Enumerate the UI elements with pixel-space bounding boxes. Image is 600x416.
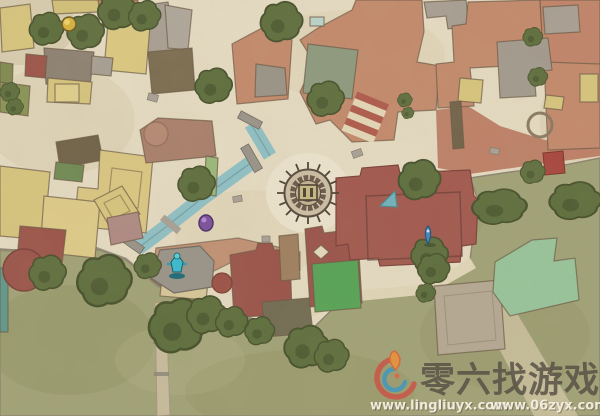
game-map-screenshot[interactable]: 零六找游戏 www.lingliuyx.com www.lingliuyx.co… [0,0,600,416]
paper-grain-texture [0,0,600,416]
watermark-url-primary: www.lingliuyx.com [370,399,508,414]
watermark-url-secondary: www.06zyx.com [490,399,600,414]
watermark-site-name: 零六找游戏 [420,361,600,401]
map-canvas[interactable]: 零六找游戏 www.lingliuyx.com www.lingliuyx.co… [0,0,600,416]
